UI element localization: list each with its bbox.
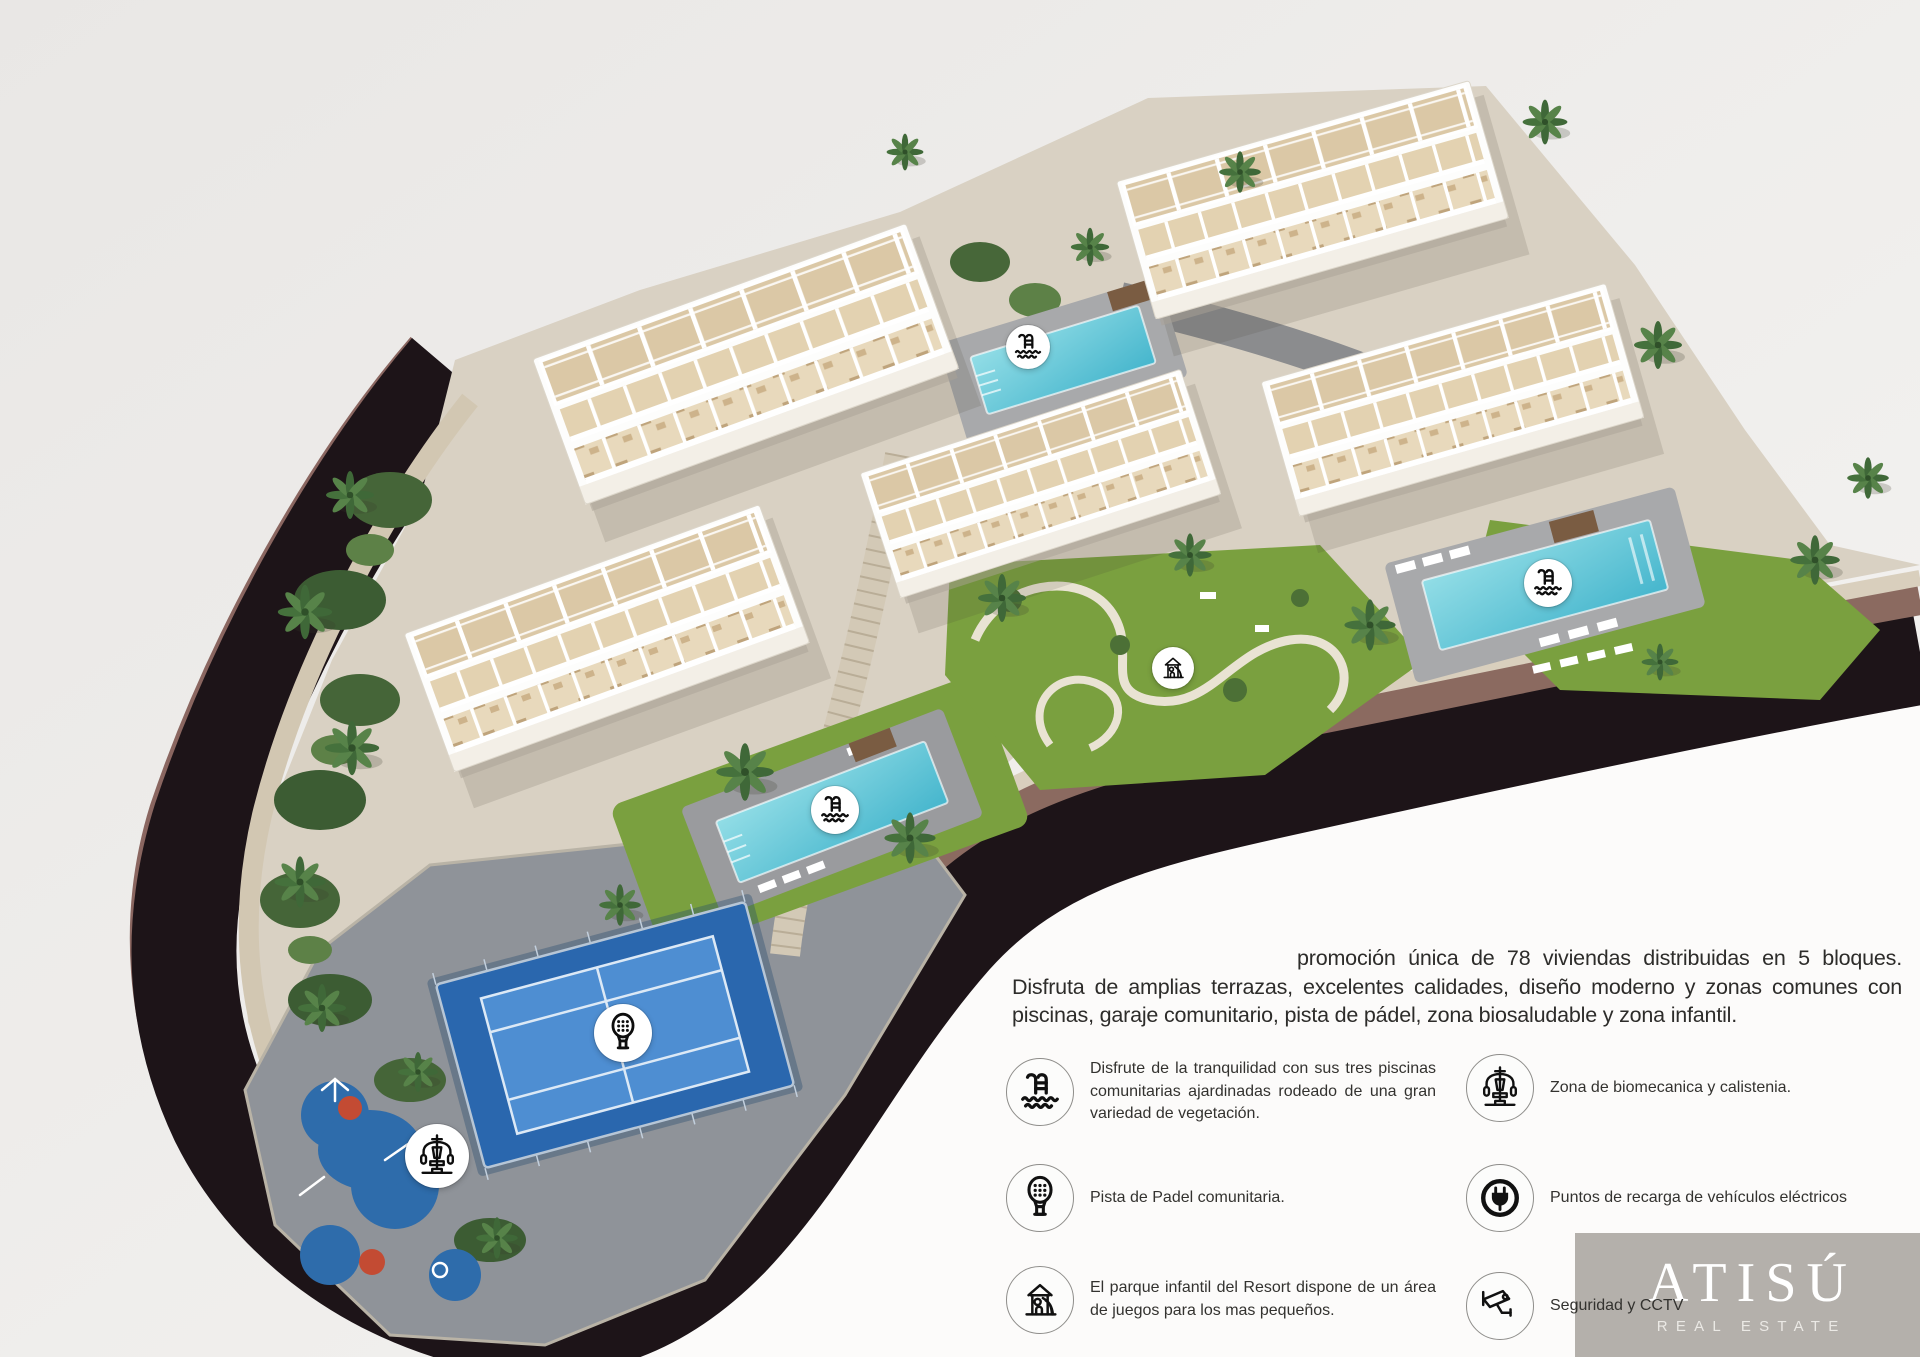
padel-icon bbox=[602, 1012, 644, 1054]
biomechanics-icon bbox=[1466, 1054, 1534, 1122]
padel-icon bbox=[1006, 1164, 1074, 1232]
map-marker-biomechanics bbox=[405, 1124, 469, 1188]
site-plan-render bbox=[0, 0, 1920, 1357]
playground-icon bbox=[1158, 653, 1188, 683]
feature-ev-charging: Puntos de recarga de vehículos eléctrico… bbox=[1466, 1164, 1902, 1232]
feature-pools-text: Disfrute de la tranquilidad con sus tres… bbox=[1090, 1058, 1436, 1126]
feature-pools: Disfrute de la tranquilidad con sus tres… bbox=[1006, 1058, 1436, 1126]
pool-icon bbox=[1006, 1058, 1074, 1126]
map-marker-pool-west bbox=[811, 786, 859, 834]
biomechanics-icon bbox=[414, 1133, 460, 1179]
feature-cctv: Seguridad y CCTV bbox=[1466, 1272, 1766, 1340]
intro-paragraph: promoción única de 78 viviendas distribu… bbox=[1012, 944, 1902, 1030]
map-marker-pool-east bbox=[1524, 559, 1572, 607]
feature-playground-text: El parque infantil del Resort dispone de… bbox=[1090, 1277, 1436, 1322]
map-marker-pool-north bbox=[1006, 325, 1050, 369]
feature-padel-text: Pista de Padel comunitaria. bbox=[1090, 1187, 1285, 1210]
ev-charger-icon bbox=[1466, 1164, 1534, 1232]
playground-icon bbox=[1006, 1266, 1074, 1334]
feature-biomechanics: Zona de biomecanica y calistenia. bbox=[1466, 1054, 1902, 1122]
brochure-page: promoción única de 78 viviendas distribu… bbox=[0, 0, 1920, 1357]
pool-icon bbox=[1012, 331, 1044, 363]
feature-biomechanics-text: Zona de biomecanica y calistenia. bbox=[1550, 1077, 1791, 1100]
pool-icon bbox=[1531, 566, 1565, 600]
cctv-icon bbox=[1466, 1272, 1534, 1340]
pool-icon bbox=[818, 793, 852, 827]
feature-cctv-text: Seguridad y CCTV bbox=[1550, 1295, 1683, 1318]
feature-ev-charging-text: Puntos de recarga de vehículos eléctrico… bbox=[1550, 1187, 1847, 1210]
map-marker-playground bbox=[1152, 647, 1194, 689]
map-marker-padel bbox=[594, 1004, 652, 1062]
feature-padel: Pista de Padel comunitaria. bbox=[1006, 1164, 1436, 1232]
feature-playground: El parque infantil del Resort dispone de… bbox=[1006, 1266, 1436, 1334]
